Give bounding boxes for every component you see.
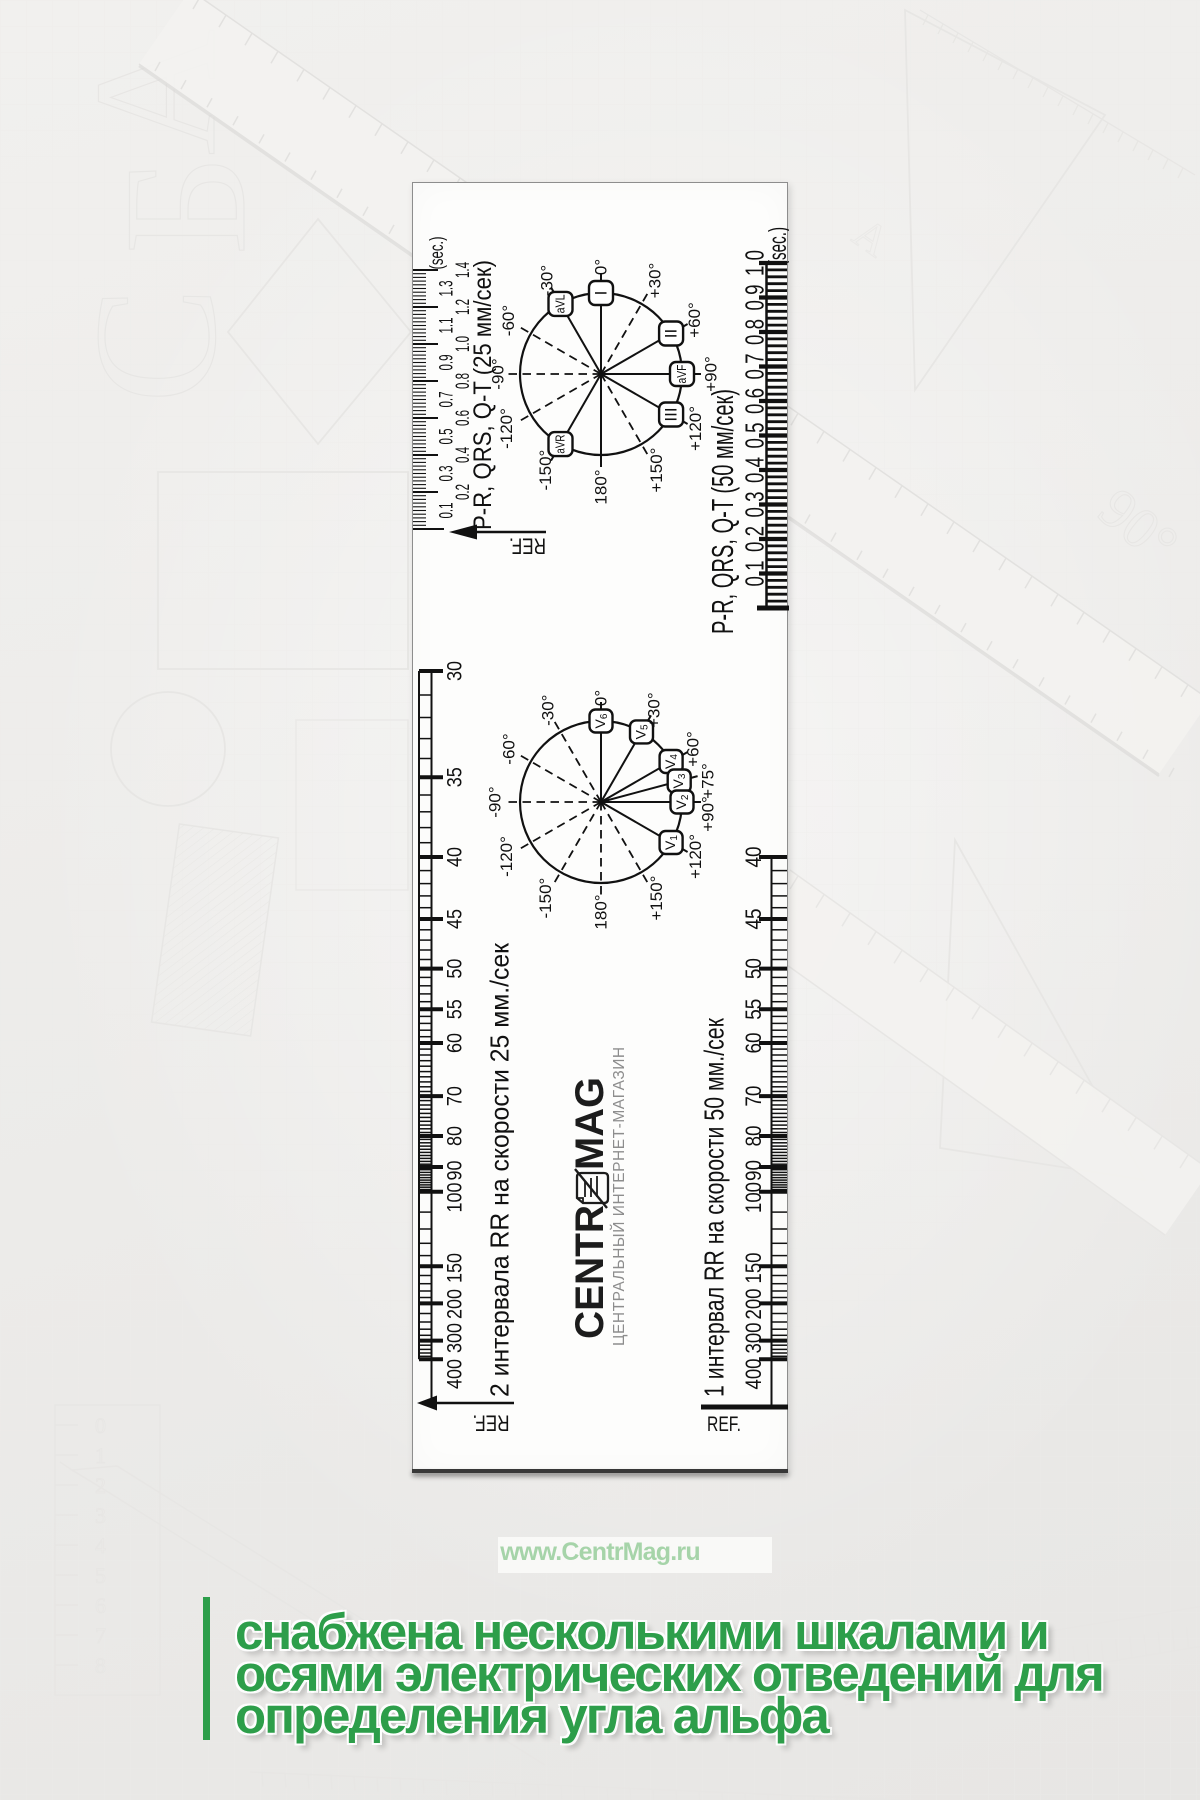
- svg-text:+150°: +150°: [647, 876, 666, 921]
- svg-text:0.1: 0.1: [436, 503, 458, 519]
- svg-text:70: 70: [741, 1086, 766, 1107]
- svg-text:0.3: 0.3: [740, 492, 770, 518]
- svg-text:+120°: +120°: [686, 834, 705, 879]
- svg-text:-30°: -30°: [539, 695, 558, 726]
- svg-text:40: 40: [741, 847, 766, 868]
- svg-text:300: 300: [741, 1323, 766, 1354]
- svg-text:0.3: 0.3: [436, 466, 458, 482]
- svg-text:-30°: -30°: [538, 265, 557, 296]
- svg-text:90: 90: [444, 1161, 467, 1181]
- svg-text:-90°: -90°: [489, 358, 508, 389]
- svg-text:CENTR: CENTR: [568, 1205, 612, 1339]
- svg-text:45: 45: [444, 909, 467, 929]
- svg-text:-60°: -60°: [500, 733, 519, 764]
- svg-text:50: 50: [741, 958, 766, 979]
- svg-text:400: 400: [741, 1359, 766, 1390]
- svg-text:180°: 180°: [592, 894, 611, 929]
- svg-text:0.5: 0.5: [740, 423, 770, 449]
- svg-text:3: 3: [95, 1503, 106, 1528]
- svg-text:0.1: 0.1: [740, 561, 770, 587]
- svg-text:-60°: -60°: [499, 305, 518, 336]
- svg-text:45: 45: [741, 909, 766, 930]
- svg-text:0.4: 0.4: [740, 457, 770, 483]
- svg-text:7: 7: [95, 1623, 106, 1648]
- svg-text:REF.: REF.: [707, 1413, 741, 1436]
- svg-text:+120°: +120°: [686, 406, 705, 451]
- svg-text:300: 300: [444, 1323, 467, 1353]
- svg-text:+150°: +150°: [647, 448, 666, 493]
- svg-text:1: 1: [95, 1443, 106, 1468]
- svg-text:80: 80: [444, 1126, 467, 1146]
- svg-text:0.8: 0.8: [740, 319, 770, 345]
- svg-text:1.1: 1.1: [436, 318, 458, 334]
- svg-text:0.6: 0.6: [740, 388, 770, 414]
- svg-text:35: 35: [444, 767, 467, 787]
- svg-text:MAG: MAG: [568, 1077, 612, 1170]
- svg-text:II: II: [662, 329, 681, 338]
- svg-text:60: 60: [741, 1033, 766, 1054]
- svg-text:-150°: -150°: [536, 878, 555, 919]
- svg-text:+30°: +30°: [646, 263, 665, 299]
- svg-text:aVR: aVR: [554, 435, 568, 454]
- svg-text:100: 100: [741, 1182, 766, 1213]
- svg-text:1.3: 1.3: [436, 281, 458, 297]
- svg-text:100: 100: [444, 1183, 467, 1213]
- svg-text:90: 90: [741, 1160, 766, 1181]
- svg-text:aVF: aVF: [675, 364, 689, 383]
- svg-text:-90°: -90°: [486, 786, 505, 817]
- svg-text:2 интервала RR на скорости 25: 2 интервала RR на скорости 25 мм./сек: [485, 942, 515, 1397]
- svg-text:400: 400: [444, 1359, 467, 1389]
- svg-text:P-R, QRS, Q-T (25 мм/сек): P-R, QRS, Q-T (25 мм/сек): [469, 260, 497, 530]
- svg-text:0.7: 0.7: [436, 392, 458, 408]
- svg-text:55: 55: [444, 999, 467, 1019]
- svg-text:III: III: [662, 407, 681, 421]
- svg-text:6: 6: [95, 1593, 106, 1618]
- svg-text:-120°: -120°: [497, 836, 516, 877]
- svg-text:0: 0: [95, 1413, 106, 1438]
- svg-text:0°: 0°: [592, 259, 611, 275]
- svg-text:200: 200: [444, 1289, 467, 1319]
- svg-text:70: 70: [444, 1086, 467, 1106]
- svg-text:1 интервал RR на скорости 50 м: 1 интервал RR на скорости 50 мм./сек: [699, 1017, 730, 1397]
- svg-text:С: С: [58, 287, 252, 404]
- svg-text:+90°: +90°: [702, 356, 721, 392]
- svg-text:150: 150: [444, 1253, 467, 1283]
- svg-text:+60°: +60°: [683, 731, 702, 767]
- svg-text:(sec.): (sec.): [764, 227, 789, 265]
- svg-text:0.9: 0.9: [740, 285, 770, 311]
- svg-text:200: 200: [741, 1289, 766, 1320]
- svg-text:50: 50: [444, 959, 467, 979]
- svg-text:180°: 180°: [592, 469, 611, 504]
- svg-text:REF.: REF.: [473, 1411, 510, 1436]
- svg-text:ЦЕНТРАЛЬНЫЙ ИНТЕРНЕТ-МАГАЗИН: ЦЕНТРАЛЬНЫЙ ИНТЕРНЕТ-МАГАЗИН: [610, 1046, 628, 1346]
- svg-text:+75°: +75°: [699, 763, 718, 799]
- svg-text:0.2: 0.2: [740, 526, 770, 552]
- svg-text:-120°: -120°: [497, 408, 516, 449]
- svg-text:REF.: REF.: [509, 534, 546, 559]
- svg-text:-150°: -150°: [536, 450, 555, 491]
- svg-text:0°: 0°: [592, 690, 611, 706]
- svg-text:+60°: +60°: [685, 302, 704, 338]
- svg-text:P-R, QRS, Q-T (50 мм/сек): P-R, QRS, Q-T (50 мм/сек): [705, 389, 740, 634]
- svg-text:(sec.): (sec.): [426, 237, 448, 270]
- svg-text:150: 150: [741, 1253, 766, 1284]
- svg-text:0.9: 0.9: [436, 355, 458, 371]
- svg-text:0.7: 0.7: [740, 354, 770, 380]
- svg-text:55: 55: [741, 999, 766, 1020]
- svg-text:60: 60: [444, 1033, 467, 1053]
- svg-text:I: I: [592, 291, 611, 296]
- svg-text:Б: Б: [88, 155, 282, 256]
- svg-text:8: 8: [95, 1653, 106, 1678]
- svg-text:30: 30: [444, 661, 467, 681]
- svg-text:80: 80: [741, 1126, 766, 1147]
- svg-text:aVL: aVL: [554, 294, 568, 313]
- svg-text:40: 40: [444, 847, 467, 867]
- svg-text:+30°: +30°: [645, 692, 664, 728]
- svg-text:+90°: +90°: [699, 796, 718, 832]
- svg-text:0.5: 0.5: [436, 428, 458, 444]
